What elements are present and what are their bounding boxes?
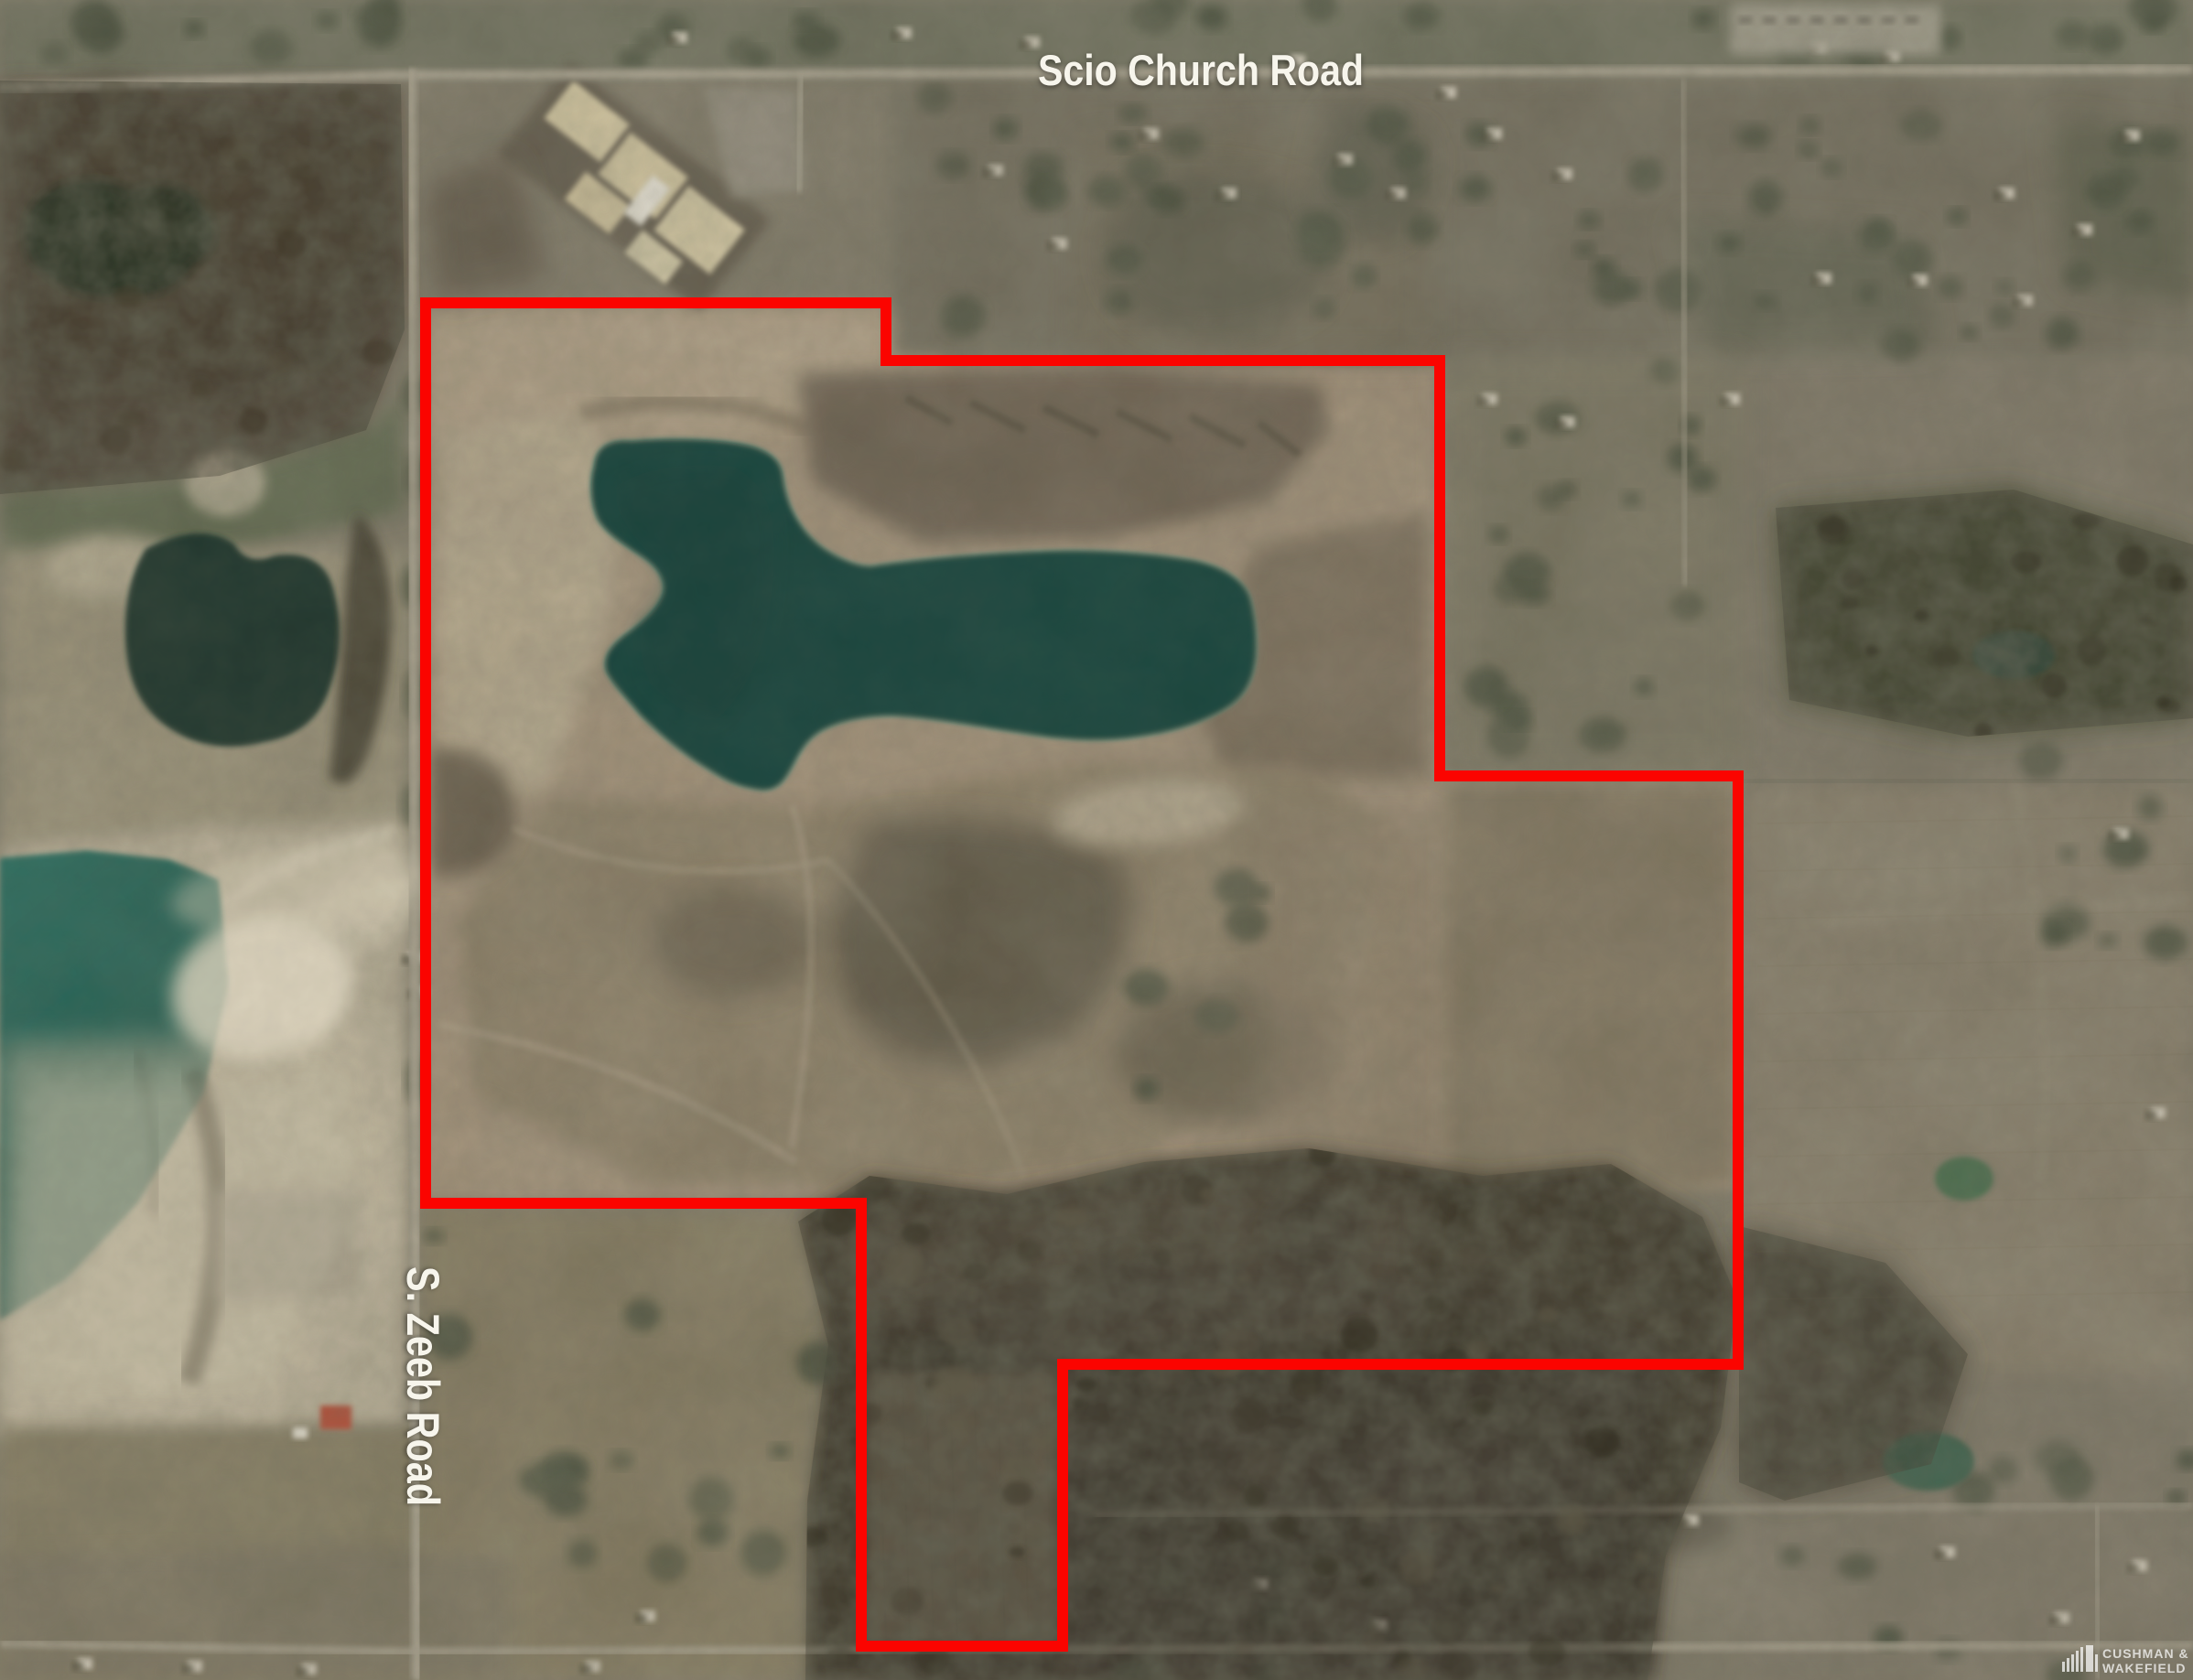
svg-text:CUSHMAN &: CUSHMAN & <box>2102 1646 2189 1661</box>
svg-text:Scio Church Road: Scio Church Road <box>1038 46 1364 94</box>
svg-text:S. Zeeb Road: S. Zeeb Road <box>397 1266 448 1506</box>
svg-text:WAKEFIELD: WAKEFIELD <box>2102 1661 2186 1675</box>
